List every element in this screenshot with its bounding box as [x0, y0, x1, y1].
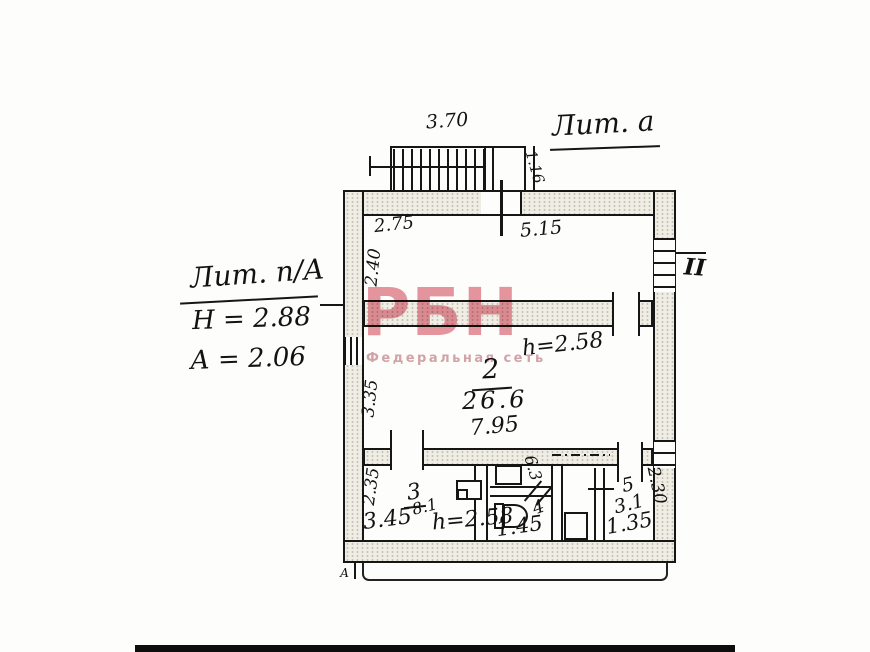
stairs-treads	[393, 149, 485, 190]
right-wall-window-1	[654, 238, 675, 292]
stairs-handrail-stub	[369, 156, 371, 176]
litera-top-underline	[550, 145, 660, 151]
interior-wall-2-left-jamb-b	[422, 430, 424, 470]
interior-wall-2-left-door-gap	[392, 446, 422, 468]
room2-area: 26.6	[462, 387, 528, 413]
partition-bath-corridor	[551, 466, 563, 540]
floor-plan-scan: Лит. п/А Н = 2.88 А = 2.06 3.70 Лит. а 1…	[0, 0, 870, 652]
partition-corridor-room5	[594, 468, 605, 540]
scan-edge-bar	[135, 645, 735, 652]
section-mark-label: II	[683, 255, 706, 279]
room2-width-dim: 7.95	[469, 414, 520, 440]
outer-wall-bottom	[343, 540, 676, 563]
interior-wall-2-left-jamb-a	[390, 430, 392, 470]
watermark-subtitle: Федеральная сеть	[366, 352, 546, 365]
bath-sink	[495, 465, 522, 485]
room5-width-dim: 1.35	[605, 509, 655, 538]
watermark-logo: РБН	[362, 280, 519, 346]
porch-top-line	[390, 146, 533, 148]
interior-wall-1-door-gap	[614, 298, 638, 329]
stairs-landing-divider	[484, 148, 494, 191]
entry-door-leaf	[500, 180, 503, 236]
interior-wall-2-right-jamb-b	[641, 442, 643, 482]
left-wall-tick	[320, 304, 344, 306]
interior-wall-2-right-jamb-a	[617, 442, 619, 482]
bath-width-dim: 1.45	[495, 513, 544, 540]
room3-flue-box-inner	[457, 489, 468, 500]
interior-wall-1-jamb-left	[612, 292, 614, 336]
condition-dashdot-line	[552, 454, 610, 456]
room1-offset-dim: 2.75	[373, 214, 415, 236]
partition-corridor-tick	[588, 488, 614, 490]
porch-left-line	[390, 146, 392, 192]
foundation-outline	[362, 563, 668, 581]
outer-wall-top-left	[343, 190, 483, 216]
room1-width-dim: 5.15	[519, 218, 563, 241]
room2-depth-dim: 3.35	[360, 379, 381, 418]
interior-wall-2-right-door-gap	[619, 446, 641, 468]
interior-wall-1-jamb-right	[638, 292, 640, 336]
porch-width-dim: 3.70	[425, 111, 469, 133]
outer-wall-left	[343, 190, 364, 563]
height-main-label: Н = 2.88	[192, 304, 312, 334]
stairs-handrail	[369, 166, 487, 168]
axis-mark-label: А	[340, 567, 349, 579]
right-wall-window-2	[654, 440, 675, 468]
corridor-door-riser	[564, 512, 588, 540]
litera-main-label: Лит. п/А	[189, 255, 325, 292]
left-wall-vent-window	[344, 337, 364, 365]
room3-depth-dim: 2.35	[361, 467, 383, 507]
axis-mark-tick	[354, 562, 356, 579]
height-basement-label: А = 2.06	[190, 344, 307, 374]
room3-width-dim: 3.45	[362, 506, 413, 534]
litera-top-label: Лит. а	[551, 107, 655, 140]
